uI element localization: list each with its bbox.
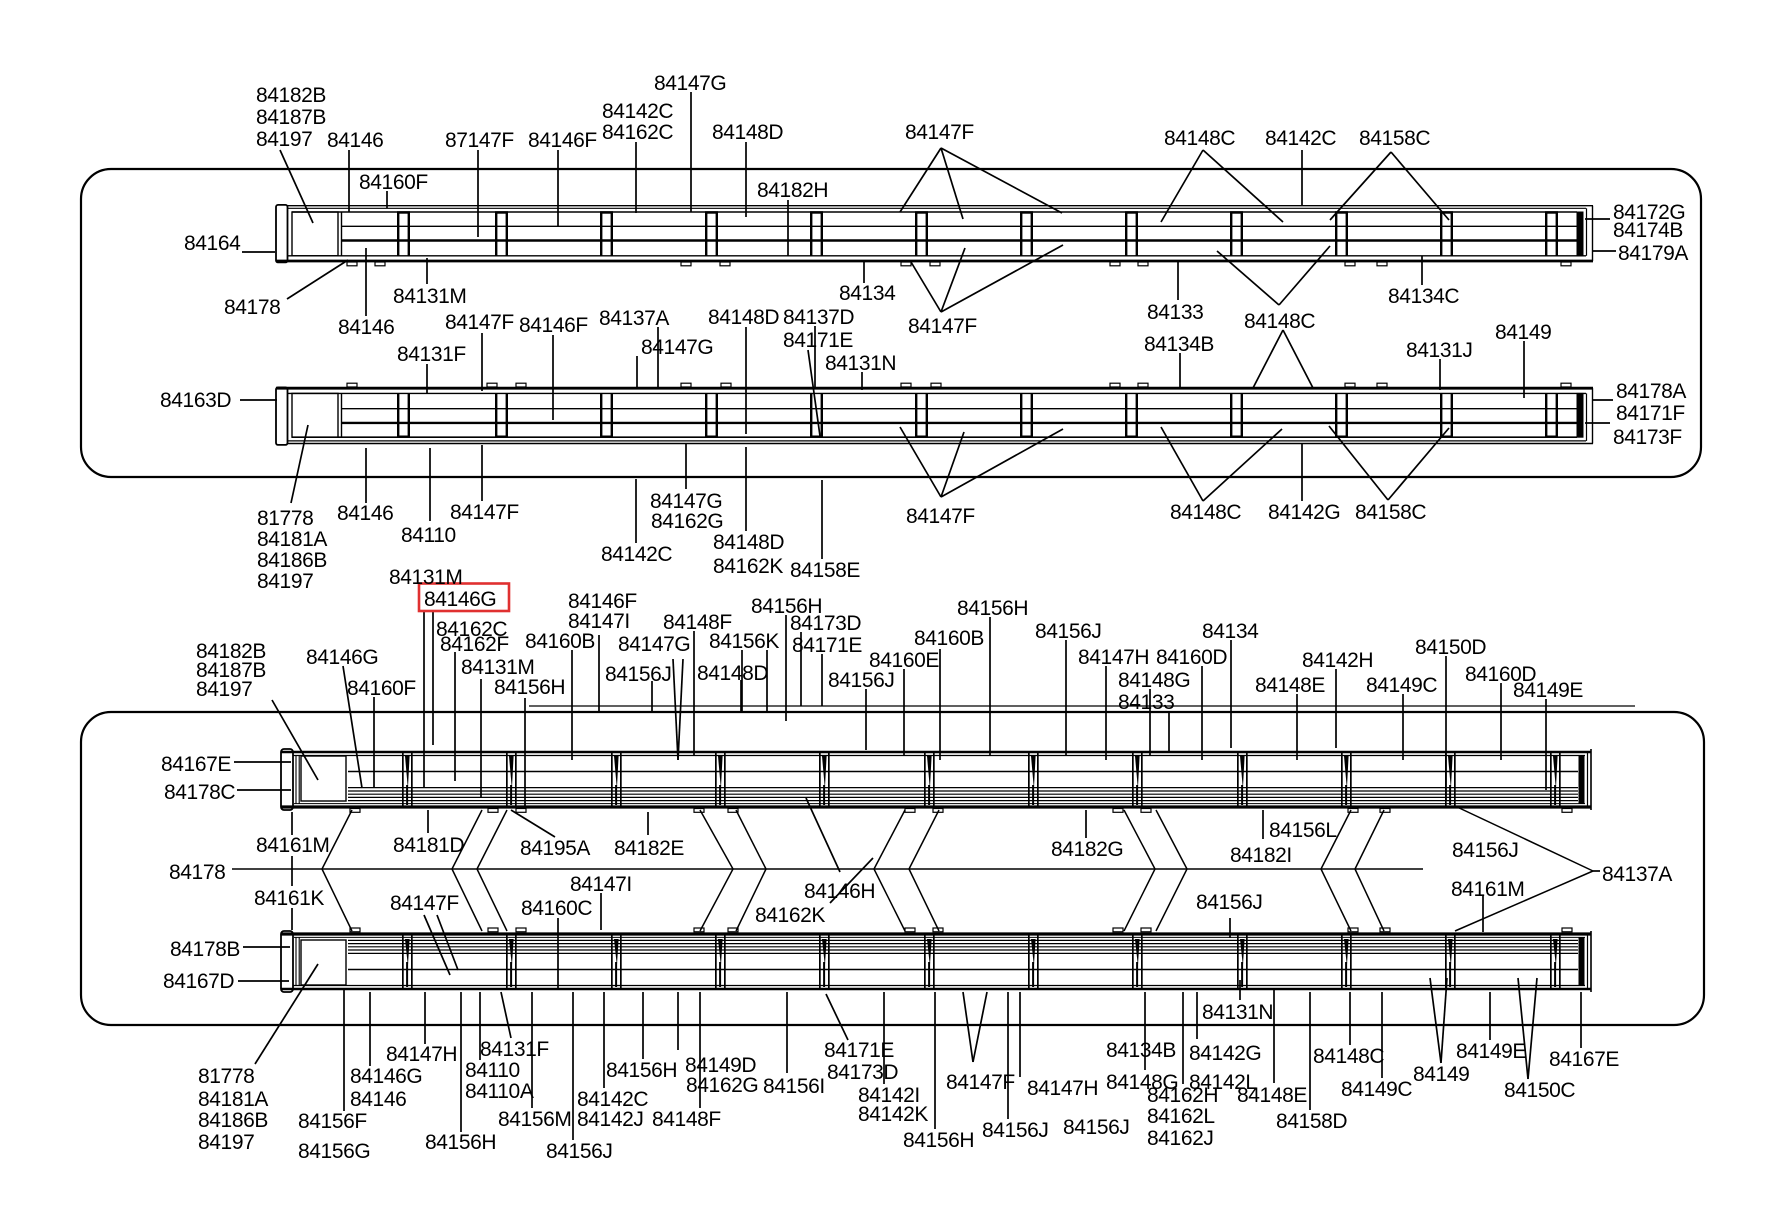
svg-text:84146G: 84146G <box>306 646 378 669</box>
svg-text:84137A: 84137A <box>599 307 669 330</box>
svg-text:84162F: 84162F <box>440 633 509 656</box>
svg-text:84160C: 84160C <box>521 897 592 920</box>
svg-text:84147H: 84147H <box>1027 1077 1098 1100</box>
svg-text:84148C: 84148C <box>1164 127 1235 150</box>
svg-text:84173F: 84173F <box>1613 426 1682 449</box>
svg-text:84146G: 84146G <box>424 588 496 611</box>
svg-text:84146G: 84146G <box>350 1065 422 1088</box>
svg-text:84178B: 84178B <box>170 938 240 961</box>
svg-text:84133: 84133 <box>1118 691 1174 714</box>
svg-text:84186B: 84186B <box>257 549 327 572</box>
svg-text:84156H: 84156H <box>903 1129 974 1152</box>
svg-text:84156I: 84156I <box>763 1075 825 1098</box>
svg-text:81778: 81778 <box>257 507 313 530</box>
svg-text:84150C: 84150C <box>1504 1079 1575 1102</box>
svg-text:84181A: 84181A <box>198 1088 268 1111</box>
svg-text:84147G: 84147G <box>641 336 713 359</box>
svg-text:84171E: 84171E <box>792 634 862 657</box>
svg-text:84156H: 84156H <box>606 1059 677 1082</box>
svg-text:84147H: 84147H <box>386 1043 457 1066</box>
svg-text:84146: 84146 <box>327 129 383 152</box>
svg-text:84182G: 84182G <box>1051 838 1123 861</box>
svg-text:84156H: 84156H <box>957 597 1028 620</box>
svg-text:84160D: 84160D <box>1156 646 1227 669</box>
svg-text:84110A: 84110A <box>465 1080 534 1103</box>
svg-text:84156M: 84156M <box>498 1108 572 1131</box>
svg-text:84178: 84178 <box>169 861 225 884</box>
svg-text:87147F: 87147F <box>445 129 514 152</box>
svg-text:84142J: 84142J <box>577 1108 644 1131</box>
svg-text:84147F: 84147F <box>445 311 514 334</box>
svg-text:84156G: 84156G <box>298 1140 370 1163</box>
svg-text:84162G: 84162G <box>686 1074 758 1097</box>
svg-text:84147F: 84147F <box>946 1071 1015 1094</box>
svg-text:84171F: 84171F <box>1616 402 1685 425</box>
svg-text:84182E: 84182E <box>614 837 684 860</box>
svg-text:84148G: 84148G <box>1118 669 1190 692</box>
svg-text:84148D: 84148D <box>712 121 783 144</box>
svg-text:84178: 84178 <box>224 296 280 319</box>
svg-text:84186B: 84186B <box>198 1109 268 1132</box>
svg-text:84149E: 84149E <box>1456 1040 1526 1063</box>
svg-text:84142C: 84142C <box>602 100 673 123</box>
svg-text:84148D: 84148D <box>708 306 779 329</box>
svg-text:84131J: 84131J <box>1406 339 1473 362</box>
svg-text:84142K: 84142K <box>858 1103 928 1126</box>
svg-text:84149C: 84149C <box>1366 674 1437 697</box>
svg-text:84182B: 84182B <box>256 84 326 107</box>
svg-text:84142C: 84142C <box>601 543 672 566</box>
svg-text:84137D: 84137D <box>783 306 854 329</box>
svg-text:84161M: 84161M <box>256 834 330 857</box>
svg-text:84142G: 84142G <box>1268 501 1340 524</box>
svg-text:84149E: 84149E <box>1513 679 1583 702</box>
svg-text:84156F: 84156F <box>298 1110 367 1133</box>
svg-text:84162C: 84162C <box>602 121 673 144</box>
svg-text:84163D: 84163D <box>160 389 231 412</box>
svg-text:84149: 84149 <box>1413 1063 1469 1086</box>
svg-text:84179A: 84179A <box>1618 242 1688 265</box>
svg-text:84197: 84197 <box>256 128 312 151</box>
svg-text:84160F: 84160F <box>359 171 428 194</box>
svg-text:84195A: 84195A <box>520 837 590 860</box>
svg-text:84148D: 84148D <box>697 662 768 685</box>
svg-text:84149: 84149 <box>1495 321 1551 344</box>
svg-text:84182I: 84182I <box>1230 844 1292 867</box>
svg-text:84148E: 84148E <box>1237 1084 1307 1107</box>
svg-text:84156J: 84156J <box>546 1140 613 1163</box>
svg-text:84147F: 84147F <box>906 505 975 528</box>
svg-text:84160B: 84160B <box>914 627 984 650</box>
svg-text:84148E: 84148E <box>1255 674 1325 697</box>
svg-text:84147G: 84147G <box>654 72 726 95</box>
svg-text:84167D: 84167D <box>163 970 234 993</box>
svg-text:84146F: 84146F <box>519 314 588 337</box>
svg-text:81778: 81778 <box>198 1065 254 1088</box>
svg-text:84147F: 84147F <box>450 501 519 524</box>
svg-text:84133: 84133 <box>1147 301 1203 324</box>
svg-text:84187B: 84187B <box>256 106 326 129</box>
svg-text:84197: 84197 <box>257 570 313 593</box>
svg-text:84162G: 84162G <box>651 510 723 533</box>
svg-text:84131N: 84131N <box>825 352 896 375</box>
svg-text:84146H: 84146H <box>804 880 875 903</box>
svg-text:84197: 84197 <box>196 678 252 701</box>
svg-text:84131M: 84131M <box>393 285 467 308</box>
svg-text:84161M: 84161M <box>1451 878 1525 901</box>
svg-text:84164: 84164 <box>184 232 241 255</box>
svg-text:84156J: 84156J <box>1452 839 1519 862</box>
svg-text:84162J: 84162J <box>1147 1127 1214 1150</box>
svg-text:84110: 84110 <box>401 524 456 547</box>
svg-text:84134B: 84134B <box>1144 333 1214 356</box>
svg-text:84148C: 84148C <box>1170 501 1241 524</box>
svg-text:84156J: 84156J <box>982 1119 1049 1142</box>
svg-text:84158C: 84158C <box>1359 127 1430 150</box>
svg-text:84110: 84110 <box>465 1059 520 1082</box>
svg-text:84156J: 84156J <box>1063 1116 1130 1139</box>
svg-text:84147G: 84147G <box>618 633 690 656</box>
svg-text:84160F: 84160F <box>347 677 416 700</box>
svg-text:84134C: 84134C <box>1388 285 1459 308</box>
svg-text:84173D: 84173D <box>790 612 861 635</box>
svg-text:84147F: 84147F <box>390 892 459 915</box>
svg-text:84142G: 84142G <box>1189 1042 1261 1065</box>
svg-text:84156H: 84156H <box>425 1131 496 1154</box>
svg-text:84174B: 84174B <box>1613 219 1683 242</box>
svg-text:84158E: 84158E <box>790 559 860 582</box>
svg-text:84197: 84197 <box>198 1131 254 1154</box>
svg-text:84131F: 84131F <box>480 1038 549 1061</box>
svg-text:84156L: 84156L <box>1269 819 1337 842</box>
svg-text:84158C: 84158C <box>1355 501 1426 524</box>
svg-text:84167E: 84167E <box>161 753 231 776</box>
svg-text:84181D: 84181D <box>393 834 464 857</box>
svg-text:84156J: 84156J <box>1035 620 1102 643</box>
svg-text:84146F: 84146F <box>528 129 597 152</box>
svg-text:84162K: 84162K <box>755 904 825 927</box>
svg-text:84146: 84146 <box>350 1088 406 1111</box>
svg-text:84173D: 84173D <box>827 1061 898 1084</box>
svg-text:84150D: 84150D <box>1415 636 1486 659</box>
svg-text:84156K: 84156K <box>709 630 779 653</box>
svg-text:84142H: 84142H <box>1302 649 1373 672</box>
svg-text:84142C: 84142C <box>1265 127 1336 150</box>
svg-text:84156J: 84156J <box>605 663 672 686</box>
svg-text:84134B: 84134B <box>1106 1039 1176 1062</box>
svg-text:84147F: 84147F <box>905 121 974 144</box>
svg-text:84146: 84146 <box>338 316 394 339</box>
svg-text:84178C: 84178C <box>164 781 235 804</box>
svg-text:84158D: 84158D <box>1276 1110 1347 1133</box>
svg-text:84147F: 84147F <box>908 315 977 338</box>
svg-text:84131F: 84131F <box>397 343 466 366</box>
svg-text:84137A: 84137A <box>1602 863 1672 886</box>
svg-text:84131M: 84131M <box>389 566 463 589</box>
svg-text:84149C: 84149C <box>1341 1078 1412 1101</box>
svg-text:84181A: 84181A <box>257 528 327 551</box>
svg-text:84148D: 84148D <box>713 531 784 554</box>
svg-text:84160B: 84160B <box>525 630 595 653</box>
svg-text:84182H: 84182H <box>757 179 828 202</box>
svg-text:84156J: 84156J <box>1196 891 1263 914</box>
svg-text:84156J: 84156J <box>828 669 895 692</box>
svg-text:84171E: 84171E <box>783 329 853 352</box>
svg-text:84148C: 84148C <box>1244 310 1315 333</box>
svg-text:84148F: 84148F <box>652 1108 721 1131</box>
svg-text:84156H: 84156H <box>494 676 565 699</box>
svg-text:84134: 84134 <box>1202 620 1259 643</box>
svg-text:84171E: 84171E <box>824 1039 894 1062</box>
svg-text:84162H: 84162H <box>1147 1084 1218 1107</box>
svg-text:84147I: 84147I <box>570 873 632 896</box>
svg-text:84134: 84134 <box>839 282 896 305</box>
svg-text:84167E: 84167E <box>1549 1048 1619 1071</box>
svg-text:84147H: 84147H <box>1078 646 1149 669</box>
svg-text:84146: 84146 <box>337 502 393 525</box>
svg-text:84162L: 84162L <box>1147 1105 1215 1128</box>
svg-text:84148C: 84148C <box>1313 1045 1384 1068</box>
svg-text:84131N: 84131N <box>1202 1001 1273 1024</box>
svg-text:84178A: 84178A <box>1616 380 1686 403</box>
svg-text:84161K: 84161K <box>254 887 324 910</box>
svg-text:84162K: 84162K <box>713 555 783 578</box>
